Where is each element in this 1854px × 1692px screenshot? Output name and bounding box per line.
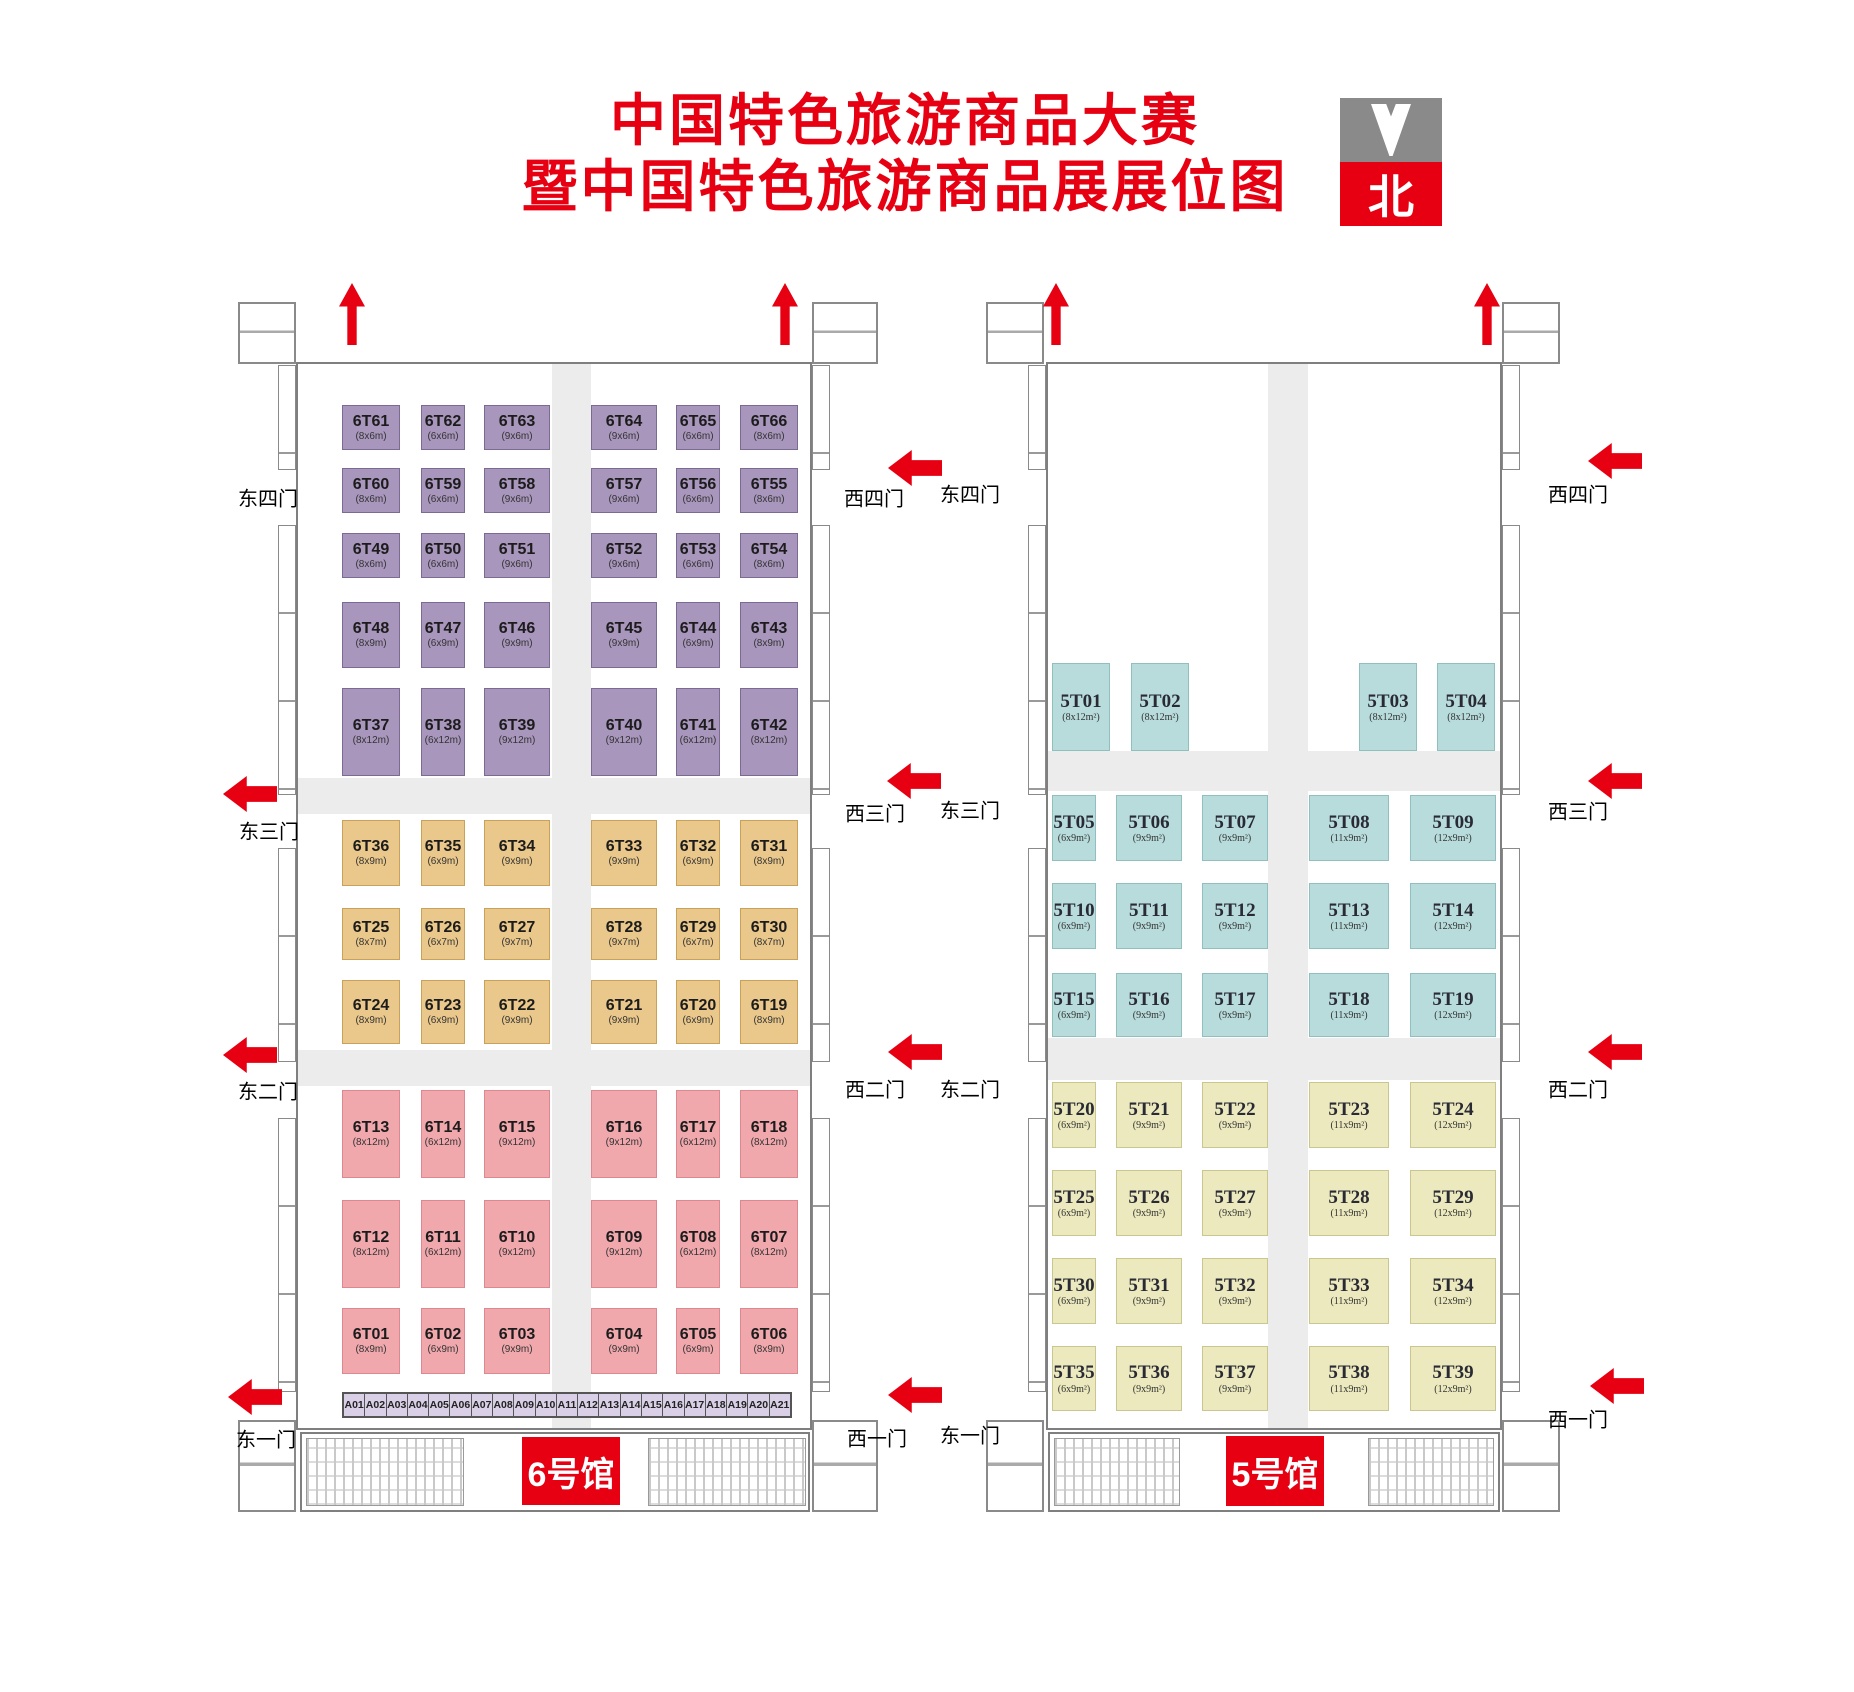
booth-size: (9x6m) xyxy=(608,431,639,442)
exit-arrow-left-icon xyxy=(887,763,941,799)
booth-6T07: 6T07(8x12m) xyxy=(740,1200,798,1288)
booth-size: (8x9m) xyxy=(355,1344,386,1355)
booth-id: 5T07 xyxy=(1214,812,1255,833)
booth-id: 6T35 xyxy=(425,838,461,856)
booth-6T15: 6T15(9x12m) xyxy=(484,1090,550,1178)
booth-5T18: 5T18(11x9m²) xyxy=(1309,973,1389,1037)
booth-id: 6T18 xyxy=(751,1119,787,1137)
booth-size: (6x12m) xyxy=(425,1247,462,1258)
booth-6T27: 6T27(9x7m) xyxy=(484,908,550,960)
exit-arrow-left-icon xyxy=(1590,1368,1644,1404)
booth-6T40: 6T40(9x12m) xyxy=(591,688,657,776)
north-compass: 北 xyxy=(1340,98,1442,226)
booth-id: 6T02 xyxy=(425,1326,461,1344)
booth-id: 6T63 xyxy=(499,413,535,431)
booth-6T03: 6T03(9x9m) xyxy=(484,1308,550,1374)
booth-size: (9x6m) xyxy=(608,559,639,570)
booth-id: 5T14 xyxy=(1432,900,1473,921)
booth-id: 6T52 xyxy=(606,541,642,559)
booth-size: (12x9m²) xyxy=(1434,1384,1471,1395)
booth-5T01: 5T01(8x12m²) xyxy=(1052,663,1110,751)
booth-id: 6T49 xyxy=(353,541,389,559)
floor-plan-canvas: 中国特色旅游商品大赛 暨中国特色旅游商品展展位图 北 中国特色旅游商品大赛区 (… xyxy=(0,0,1854,1692)
booth-id: 6T32 xyxy=(680,838,716,856)
corner-room xyxy=(238,302,296,364)
booth-6T56: 6T56(6x6m) xyxy=(676,468,720,513)
booth-size: (12x9m²) xyxy=(1434,833,1471,844)
booth-size: (9x9m²) xyxy=(1219,1384,1251,1395)
booth-6T65: 6T65(6x6m) xyxy=(676,405,720,450)
booth-id: 5T32 xyxy=(1214,1275,1255,1296)
booth-5T13: 5T13(11x9m²) xyxy=(1309,883,1389,949)
booth-5T07: 5T07(9x9m²) xyxy=(1202,795,1268,861)
booth-size: (11x9m²) xyxy=(1330,1208,1367,1219)
booth-size: (9x9m) xyxy=(608,856,639,867)
booth-6T05: 6T05(6x9m) xyxy=(676,1308,720,1374)
booth-id: 5T30 xyxy=(1053,1275,1094,1296)
booth-id: 6T22 xyxy=(499,997,535,1015)
strip-booth-A21: A21 xyxy=(770,1394,790,1416)
booth-id: 6T40 xyxy=(606,717,642,735)
booth-size: (9x9m) xyxy=(501,856,532,867)
booth-id: 5T17 xyxy=(1214,989,1255,1010)
booth-size: (9x6m) xyxy=(501,494,532,505)
booth-size: (9x12m) xyxy=(606,1137,643,1148)
booth-id: 5T33 xyxy=(1328,1275,1369,1296)
booth-id: 6T39 xyxy=(499,717,535,735)
booth-id: 6T64 xyxy=(606,413,642,431)
booth-size: (9x9m²) xyxy=(1219,1296,1251,1307)
booth-5T23: 5T23(11x9m²) xyxy=(1309,1082,1389,1148)
booth-size: (6x7m) xyxy=(682,937,713,948)
corner-room xyxy=(986,302,1044,364)
booth-6T34: 6T34(9x9m) xyxy=(484,820,550,886)
booth-id: 6T31 xyxy=(751,838,787,856)
booth-6T01: 6T01(8x9m) xyxy=(342,1308,400,1374)
gate-label-hall5-gates_east-2: 东三门 xyxy=(940,795,1000,824)
booth-id: 6T59 xyxy=(425,476,461,494)
booth-id: 5T13 xyxy=(1328,900,1369,921)
booth-size: (6x9m²) xyxy=(1058,1010,1090,1021)
strip-booth-A07: A07 xyxy=(472,1394,493,1416)
booth-size: (6x12m) xyxy=(680,735,717,746)
booth-id: 6T09 xyxy=(606,1229,642,1247)
gate-label-hall5-gates_west-2: 西三门 xyxy=(1548,796,1608,825)
side-wall xyxy=(1028,525,1046,795)
booth-id: 6T04 xyxy=(606,1326,642,1344)
strip-booth-A18: A18 xyxy=(706,1394,727,1416)
booth-5T27: 5T27(9x9m²) xyxy=(1202,1170,1268,1236)
booth-5T05: 5T05(6x9m²) xyxy=(1052,795,1096,861)
facility-block xyxy=(648,1438,806,1506)
exit-arrow-left-icon xyxy=(1588,763,1642,799)
booth-size: (6x6m) xyxy=(427,559,458,570)
exit-arrow-up-icon xyxy=(1043,283,1069,345)
booth-6T31: 6T31(8x9m) xyxy=(740,820,798,886)
booth-size: (8x9m) xyxy=(753,856,784,867)
booth-size: (9x9m²) xyxy=(1133,1208,1165,1219)
booth-6T54: 6T54(8x6m) xyxy=(740,533,798,578)
facility-block xyxy=(1368,1438,1494,1506)
booth-size: (9x9m) xyxy=(608,1015,639,1026)
booth-6T02: 6T02(6x9m) xyxy=(421,1308,465,1374)
exit-arrow-left-icon xyxy=(223,1037,277,1073)
booth-size: (9x9m²) xyxy=(1133,833,1165,844)
booth-5T30: 5T30(6x9m²) xyxy=(1052,1258,1096,1324)
booth-6T23: 6T23(6x9m) xyxy=(421,980,465,1044)
facility-block xyxy=(1054,1438,1180,1506)
booth-6T32: 6T32(6x9m) xyxy=(676,820,720,886)
gate-label-hall6-gates_west-2: 西三门 xyxy=(845,798,905,827)
booth-6T51: 6T51(9x6m) xyxy=(484,533,550,578)
booth-size: (8x12m) xyxy=(751,1137,788,1148)
booth-id: 6T15 xyxy=(499,1119,535,1137)
booth-size: (6x7m) xyxy=(427,937,458,948)
booth-size: (6x9m) xyxy=(682,638,713,649)
booth-size: (8x6m) xyxy=(355,559,386,570)
booth-size: (6x9m) xyxy=(427,856,458,867)
booth-6T04: 6T04(9x9m) xyxy=(591,1308,657,1374)
booth-size: (6x9m) xyxy=(682,856,713,867)
booth-size: (8x12m²) xyxy=(1369,712,1406,723)
booth-id: 5T03 xyxy=(1367,691,1408,712)
booth-5T09: 5T09(12x9m²) xyxy=(1410,795,1496,861)
booth-6T50: 6T50(6x6m) xyxy=(421,533,465,578)
strip-booth-A05: A05 xyxy=(429,1394,450,1416)
booth-5T04: 5T04(8x12m²) xyxy=(1437,663,1495,751)
booth-size: (9x9m²) xyxy=(1133,921,1165,932)
booth-size: (8x12m) xyxy=(751,1247,788,1258)
booth-5T11: 5T11(9x9m²) xyxy=(1116,883,1182,949)
booth-id: 6T47 xyxy=(425,620,461,638)
booth-size: (6x9m) xyxy=(427,1344,458,1355)
gate-label-hall5-gates_east-1: 东四门 xyxy=(940,479,1000,508)
booth-size: (6x12m) xyxy=(425,1137,462,1148)
booth-size: (6x9m²) xyxy=(1058,921,1090,932)
strip-booth-A02: A02 xyxy=(365,1394,386,1416)
booth-size: (9x12m) xyxy=(499,1137,536,1148)
booth-id: 6T58 xyxy=(499,476,535,494)
gate-label-hall5-gates_west-1: 西四门 xyxy=(1548,479,1608,508)
booth-6T36: 6T36(8x9m) xyxy=(342,820,400,886)
booth-6T59: 6T59(6x6m) xyxy=(421,468,465,513)
exit-arrow-up-icon xyxy=(339,283,365,345)
booth-size: (11x9m²) xyxy=(1330,1296,1367,1307)
booth-size: (6x9m) xyxy=(682,1344,713,1355)
booth-size: (9x9m²) xyxy=(1219,921,1251,932)
booth-size: (9x9m²) xyxy=(1219,833,1251,844)
booth-id: 6T43 xyxy=(751,620,787,638)
booth-id: 5T18 xyxy=(1328,989,1369,1010)
booth-6T61: 6T61(8x6m) xyxy=(342,405,400,450)
booth-id: 6T42 xyxy=(751,717,787,735)
booth-id: 5T12 xyxy=(1214,900,1255,921)
booth-id: 6T41 xyxy=(680,717,716,735)
booth-size: (8x6m) xyxy=(753,431,784,442)
booth-size: (11x9m²) xyxy=(1330,921,1367,932)
side-wall xyxy=(812,525,830,795)
booth-6T12: 6T12(8x12m) xyxy=(342,1200,400,1288)
strip-booth-A03: A03 xyxy=(387,1394,408,1416)
gate-label-hall6-gates_east-3: 东二门 xyxy=(238,1076,298,1105)
booth-id: 6T14 xyxy=(425,1119,461,1137)
booth-size: (8x9m) xyxy=(753,638,784,649)
booth-size: (8x12m²) xyxy=(1062,712,1099,723)
corner-room xyxy=(1502,302,1560,364)
booth-6T39: 6T39(9x12m) xyxy=(484,688,550,776)
booth-5T20: 5T20(6x9m²) xyxy=(1052,1082,1096,1148)
booth-size: (6x6m) xyxy=(427,431,458,442)
side-wall xyxy=(1502,525,1520,795)
booth-6T64: 6T64(9x6m) xyxy=(591,405,657,450)
strip-booth-row: A01A02A03A04A05A06A07A08A09A10A11A12A13A… xyxy=(342,1392,792,1418)
strip-booth-A12: A12 xyxy=(578,1394,599,1416)
booth-6T13: 6T13(8x12m) xyxy=(342,1090,400,1178)
exit-arrow-left-icon xyxy=(888,1034,942,1070)
facility-block xyxy=(306,1438,464,1506)
booth-id: 6T07 xyxy=(751,1229,787,1247)
poster-title: 中国特色旅游商品大赛 暨中国特色旅游商品展展位图 xyxy=(522,88,1289,220)
booth-size: (9x7m) xyxy=(608,937,639,948)
booth-5T29: 5T29(12x9m²) xyxy=(1410,1170,1496,1236)
booth-id: 5T39 xyxy=(1432,1362,1473,1383)
booth-id: 6T51 xyxy=(499,541,535,559)
booth-id: 6T50 xyxy=(425,541,461,559)
booth-id: 6T20 xyxy=(680,997,716,1015)
booth-5T02: 5T02(8x12m²) xyxy=(1131,663,1189,751)
booth-6T17: 6T17(6x12m) xyxy=(676,1090,720,1178)
strip-booth-A10: A10 xyxy=(536,1394,557,1416)
booth-size: (8x9m) xyxy=(355,1015,386,1026)
north-arrow-icon xyxy=(1340,98,1442,162)
booth-id: 6T27 xyxy=(499,919,535,937)
booth-id: 5T37 xyxy=(1214,1362,1255,1383)
booth-id: 5T23 xyxy=(1328,1099,1369,1120)
booth-size: (9x9m²) xyxy=(1133,1010,1165,1021)
booth-id: 6T46 xyxy=(499,620,535,638)
booth-5T26: 5T26(9x9m²) xyxy=(1116,1170,1182,1236)
booth-6T33: 6T33(9x9m) xyxy=(591,820,657,886)
booth-id: 5T19 xyxy=(1432,989,1473,1010)
booth-6T20: 6T20(6x9m) xyxy=(676,980,720,1044)
booth-id: 6T60 xyxy=(353,476,389,494)
strip-booth-A20: A20 xyxy=(748,1394,769,1416)
booth-size: (8x9m) xyxy=(753,1015,784,1026)
booth-size: (8x9m) xyxy=(355,856,386,867)
booth-size: (6x12m) xyxy=(680,1137,717,1148)
booth-size: (6x6m) xyxy=(427,494,458,505)
gate-label-hall6-gates_east-1: 东四门 xyxy=(238,483,298,512)
booth-id: 6T65 xyxy=(680,413,716,431)
strip-booth-A19: A19 xyxy=(727,1394,748,1416)
booth-6T14: 6T14(6x12m) xyxy=(421,1090,465,1178)
side-wall xyxy=(278,1118,296,1392)
exit-arrow-up-icon xyxy=(772,283,798,345)
booth-id: 5T15 xyxy=(1053,989,1094,1010)
booth-size: (6x9m²) xyxy=(1058,1208,1090,1219)
booth-size: (6x9m²) xyxy=(1058,1384,1090,1395)
booth-5T25: 5T25(6x9m²) xyxy=(1052,1170,1096,1236)
booth-5T15: 5T15(6x9m²) xyxy=(1052,973,1096,1037)
booth-id: 5T01 xyxy=(1060,691,1101,712)
booth-6T55: 6T55(8x6m) xyxy=(740,468,798,513)
hall5-cross-aisle-2 xyxy=(1048,1038,1500,1080)
side-wall xyxy=(1028,848,1046,1062)
booth-size: (12x9m²) xyxy=(1434,1010,1471,1021)
booth-6T22: 6T22(9x9m) xyxy=(484,980,550,1044)
booth-size: (11x9m²) xyxy=(1330,833,1367,844)
booth-5T21: 5T21(9x9m²) xyxy=(1116,1082,1182,1148)
booth-size: (6x12m) xyxy=(425,735,462,746)
booth-6T08: 6T08(6x12m) xyxy=(676,1200,720,1288)
booth-id: 6T26 xyxy=(425,919,461,937)
booth-id: 6T66 xyxy=(751,413,787,431)
booth-size: (8x12m) xyxy=(751,735,788,746)
booth-id: 5T04 xyxy=(1445,691,1486,712)
booth-size: (9x9m) xyxy=(501,1344,532,1355)
booth-6T16: 6T16(9x12m) xyxy=(591,1090,657,1178)
booth-id: 6T29 xyxy=(680,919,716,937)
booth-id: 5T20 xyxy=(1053,1099,1094,1120)
booth-size: (6x9m²) xyxy=(1058,833,1090,844)
hall6-name-badge: 6号馆 xyxy=(522,1437,620,1505)
booth-size: (9x9m) xyxy=(608,1344,639,1355)
booth-6T11: 6T11(6x12m) xyxy=(421,1200,465,1288)
booth-id: 6T38 xyxy=(425,717,461,735)
booth-size: (6x9m) xyxy=(427,638,458,649)
booth-6T58: 6T58(9x6m) xyxy=(484,468,550,513)
booth-size: (9x12m) xyxy=(606,735,643,746)
booth-size: (6x9m²) xyxy=(1058,1120,1090,1131)
side-wall xyxy=(278,848,296,1062)
booth-id: 6T06 xyxy=(751,1326,787,1344)
gate-label-hall5-gates_west-4: 西一门 xyxy=(1548,1404,1608,1433)
booth-id: 6T25 xyxy=(353,919,389,937)
side-wall xyxy=(1028,1118,1046,1392)
booth-id: 6T56 xyxy=(680,476,716,494)
booth-id: 5T31 xyxy=(1128,1275,1169,1296)
booth-size: (11x9m²) xyxy=(1330,1120,1367,1131)
strip-booth-A09: A09 xyxy=(514,1394,535,1416)
booth-id: 6T45 xyxy=(606,620,642,638)
booth-5T36: 5T36(9x9m²) xyxy=(1116,1346,1182,1411)
booth-6T47: 6T47(6x9m) xyxy=(421,602,465,668)
booth-id: 6T19 xyxy=(751,997,787,1015)
booth-id: 5T06 xyxy=(1128,812,1169,833)
booth-id: 6T54 xyxy=(751,541,787,559)
booth-5T19: 5T19(12x9m²) xyxy=(1410,973,1496,1037)
exit-arrow-left-icon xyxy=(888,1377,942,1413)
booth-size: (8x9m) xyxy=(753,1344,784,1355)
booth-size: (9x9m²) xyxy=(1219,1208,1251,1219)
booth-5T16: 5T16(9x9m²) xyxy=(1116,973,1182,1037)
booth-size: (8x6m) xyxy=(753,559,784,570)
booth-size: (8x6m) xyxy=(753,494,784,505)
booth-6T24: 6T24(8x9m) xyxy=(342,980,400,1044)
strip-booth-A13: A13 xyxy=(599,1394,620,1416)
booth-size: (12x9m²) xyxy=(1434,921,1471,932)
exit-arrow-left-icon xyxy=(223,776,277,812)
booth-5T06: 5T06(9x9m²) xyxy=(1116,795,1182,861)
booth-id: 6T34 xyxy=(499,838,535,856)
booth-id: 6T01 xyxy=(353,1326,389,1344)
booth-id: 5T27 xyxy=(1214,1187,1255,1208)
booth-size: (8x7m) xyxy=(355,937,386,948)
north-label: 北 xyxy=(1340,162,1442,226)
booth-size: (8x12m²) xyxy=(1141,712,1178,723)
booth-id: 6T16 xyxy=(606,1119,642,1137)
booth-size: (9x9m) xyxy=(608,638,639,649)
booth-5T28: 5T28(11x9m²) xyxy=(1309,1170,1389,1236)
booth-size: (9x12m) xyxy=(499,1247,536,1258)
gate-label-hall6-gates_west-3: 西二门 xyxy=(845,1074,905,1103)
booth-id: 5T05 xyxy=(1053,812,1094,833)
booth-size: (8x12m) xyxy=(353,1137,390,1148)
booth-5T08: 5T08(11x9m²) xyxy=(1309,795,1389,861)
booth-id: 6T12 xyxy=(353,1229,389,1247)
compass-arrow-glyph xyxy=(1371,104,1411,156)
booth-6T60: 6T60(8x6m) xyxy=(342,468,400,513)
booth-id: 6T11 xyxy=(425,1229,461,1247)
hall6-main-aisle-2 xyxy=(298,1050,810,1086)
booth-id: 6T03 xyxy=(499,1326,535,1344)
booth-id: 5T38 xyxy=(1328,1362,1369,1383)
booth-5T32: 5T32(9x9m²) xyxy=(1202,1258,1268,1324)
booth-size: (6x6m) xyxy=(682,559,713,570)
side-wall xyxy=(1028,365,1046,470)
booth-size: (9x9m²) xyxy=(1219,1010,1251,1021)
booth-id: 6T08 xyxy=(680,1229,716,1247)
booth-id: 5T02 xyxy=(1139,691,1180,712)
strip-booth-A15: A15 xyxy=(642,1394,663,1416)
corner-room xyxy=(812,302,878,364)
side-wall xyxy=(278,365,296,470)
booth-6T18: 6T18(8x12m) xyxy=(740,1090,798,1178)
booth-size: (8x6m) xyxy=(355,431,386,442)
booth-6T42: 6T42(8x12m) xyxy=(740,688,798,776)
hall6-center-aisle xyxy=(552,364,591,1428)
booth-id: 5T21 xyxy=(1128,1099,1169,1120)
booth-6T35: 6T35(6x9m) xyxy=(421,820,465,886)
booth-size: (9x9m²) xyxy=(1133,1120,1165,1131)
booth-6T63: 6T63(9x6m) xyxy=(484,405,550,450)
booth-size: (8x12m²) xyxy=(1447,712,1484,723)
booth-size: (8x12m) xyxy=(353,1247,390,1258)
booth-6T21: 6T21(9x9m) xyxy=(591,980,657,1044)
booth-6T25: 6T25(8x7m) xyxy=(342,908,400,960)
booth-5T12: 5T12(9x9m²) xyxy=(1202,883,1268,949)
side-wall xyxy=(812,848,830,1062)
booth-5T24: 5T24(12x9m²) xyxy=(1410,1082,1496,1148)
booth-size: (6x9m) xyxy=(427,1015,458,1026)
booth-6T19: 6T19(8x9m) xyxy=(740,980,798,1044)
booth-id: 6T30 xyxy=(751,919,787,937)
corner-room xyxy=(1502,1420,1560,1512)
gate-label-hall5-gates_west-3: 西二门 xyxy=(1548,1074,1608,1103)
booth-id: 5T16 xyxy=(1128,989,1169,1010)
booth-size: (8x6m) xyxy=(355,494,386,505)
booth-5T37: 5T37(9x9m²) xyxy=(1202,1346,1268,1411)
booth-6T66: 6T66(8x6m) xyxy=(740,405,798,450)
booth-id: 5T29 xyxy=(1432,1187,1473,1208)
booth-id: 5T26 xyxy=(1128,1187,1169,1208)
booth-id: 6T44 xyxy=(680,620,716,638)
booth-size: (9x9m²) xyxy=(1133,1296,1165,1307)
booth-5T38: 5T38(11x9m²) xyxy=(1309,1346,1389,1411)
booth-6T28: 6T28(9x7m) xyxy=(591,908,657,960)
booth-6T09: 6T09(9x12m) xyxy=(591,1200,657,1288)
booth-5T35: 5T35(6x9m²) xyxy=(1052,1346,1096,1411)
